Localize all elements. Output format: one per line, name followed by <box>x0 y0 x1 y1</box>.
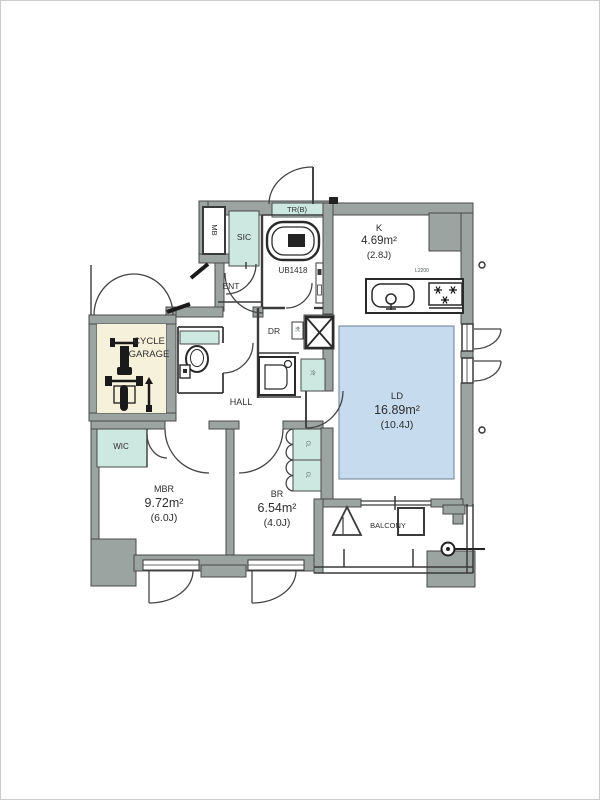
wall-segment <box>323 203 333 314</box>
shaft-x-icon <box>306 317 333 348</box>
label-ld-name: LD <box>391 392 403 402</box>
floor-plan: TR(B) MB SIC UB1418 ENT K 4.69m² (2.8J) … <box>0 0 600 800</box>
label-trunk-room: TR(B) <box>287 206 307 214</box>
label-mbr-tatami: (6.0J) <box>151 513 178 524</box>
toilet-tank <box>180 331 219 344</box>
wall-segment <box>283 421 323 429</box>
label-kitchen-tatami: (2.8J) <box>367 251 391 261</box>
open-door-leaves <box>167 264 208 312</box>
wall-segment <box>427 551 475 587</box>
door-arc <box>165 429 209 473</box>
label-kitchen-area: 4.69m² <box>361 236 397 248</box>
wall-segment <box>321 428 333 499</box>
label-closet-1: CL <box>305 441 310 447</box>
label-entrance: ENT <box>223 282 240 291</box>
window <box>462 324 473 351</box>
label-cycle-garage-2: GARAGE <box>129 350 170 360</box>
wall-segment <box>89 315 97 421</box>
window-arc <box>474 361 501 381</box>
window-arc <box>252 571 296 603</box>
label-balcony: BALCONY <box>370 522 406 530</box>
label-hall: HALL <box>230 398 253 407</box>
label-laundry: 洗 <box>295 328 300 333</box>
label-br-area: 6.54m² <box>258 502 297 515</box>
window <box>462 358 473 383</box>
wall-segment <box>443 505 465 514</box>
window-arc <box>474 329 501 349</box>
label-closet-2: CL <box>305 472 310 478</box>
wall-notch <box>329 197 338 204</box>
window-arc <box>149 571 193 603</box>
label-cycle-garage-1: CYCLE <box>133 337 165 347</box>
wall-segment <box>89 413 176 421</box>
label-wic: WIC <box>113 443 129 451</box>
floor-plan-drawing <box>1 1 600 800</box>
bifold-door-arc <box>286 476 293 492</box>
door-arc <box>147 434 167 458</box>
label-dressing-room: DR <box>268 327 280 336</box>
wall-segment <box>201 565 246 577</box>
label-ld-area: 16.89m² <box>374 404 420 417</box>
washbasin-icon <box>259 357 295 395</box>
label-bath-unit: UB1418 <box>279 267 308 275</box>
label-mbr-name: MBR <box>154 485 174 494</box>
wall-knob <box>479 262 485 268</box>
door-arc <box>269 167 313 204</box>
label-br-tatami: (4.0J) <box>264 518 291 529</box>
wall-segment <box>461 383 473 506</box>
label-meter-box: MB <box>210 224 218 235</box>
kitchen-counter <box>366 279 463 313</box>
wall-segment <box>209 421 239 429</box>
label-sic: SIC <box>237 233 251 242</box>
label-counter-length: L2200 <box>415 269 429 274</box>
bifold-door-arc <box>286 429 293 445</box>
wall-segment <box>91 539 136 586</box>
wall-segment <box>226 429 234 557</box>
wall-knob <box>479 427 485 433</box>
door-arc <box>286 283 312 308</box>
door-arc <box>223 343 253 373</box>
label-mbr-area: 9.72m² <box>145 497 184 510</box>
bathtub-icon <box>267 222 323 303</box>
wall-segment <box>461 351 473 358</box>
wall-segment <box>91 421 165 429</box>
door-arc <box>94 274 134 315</box>
label-br-name: BR <box>271 490 284 499</box>
label-ld-tatami: (10.4J) <box>381 420 414 431</box>
bifold-door-arc <box>286 460 293 476</box>
wall-segment <box>314 499 323 573</box>
label-fridge: 冷 <box>310 372 316 378</box>
emergency-hatch-icon <box>333 507 361 535</box>
label-kitchen-name: K <box>376 224 382 234</box>
wall-segment <box>199 254 231 263</box>
wall-segment <box>89 315 176 324</box>
door-leaf <box>191 264 208 278</box>
wall-segment <box>453 514 463 524</box>
door-arc <box>239 429 283 473</box>
toilet-icon <box>180 346 208 378</box>
bifold-door-arc <box>286 445 293 461</box>
